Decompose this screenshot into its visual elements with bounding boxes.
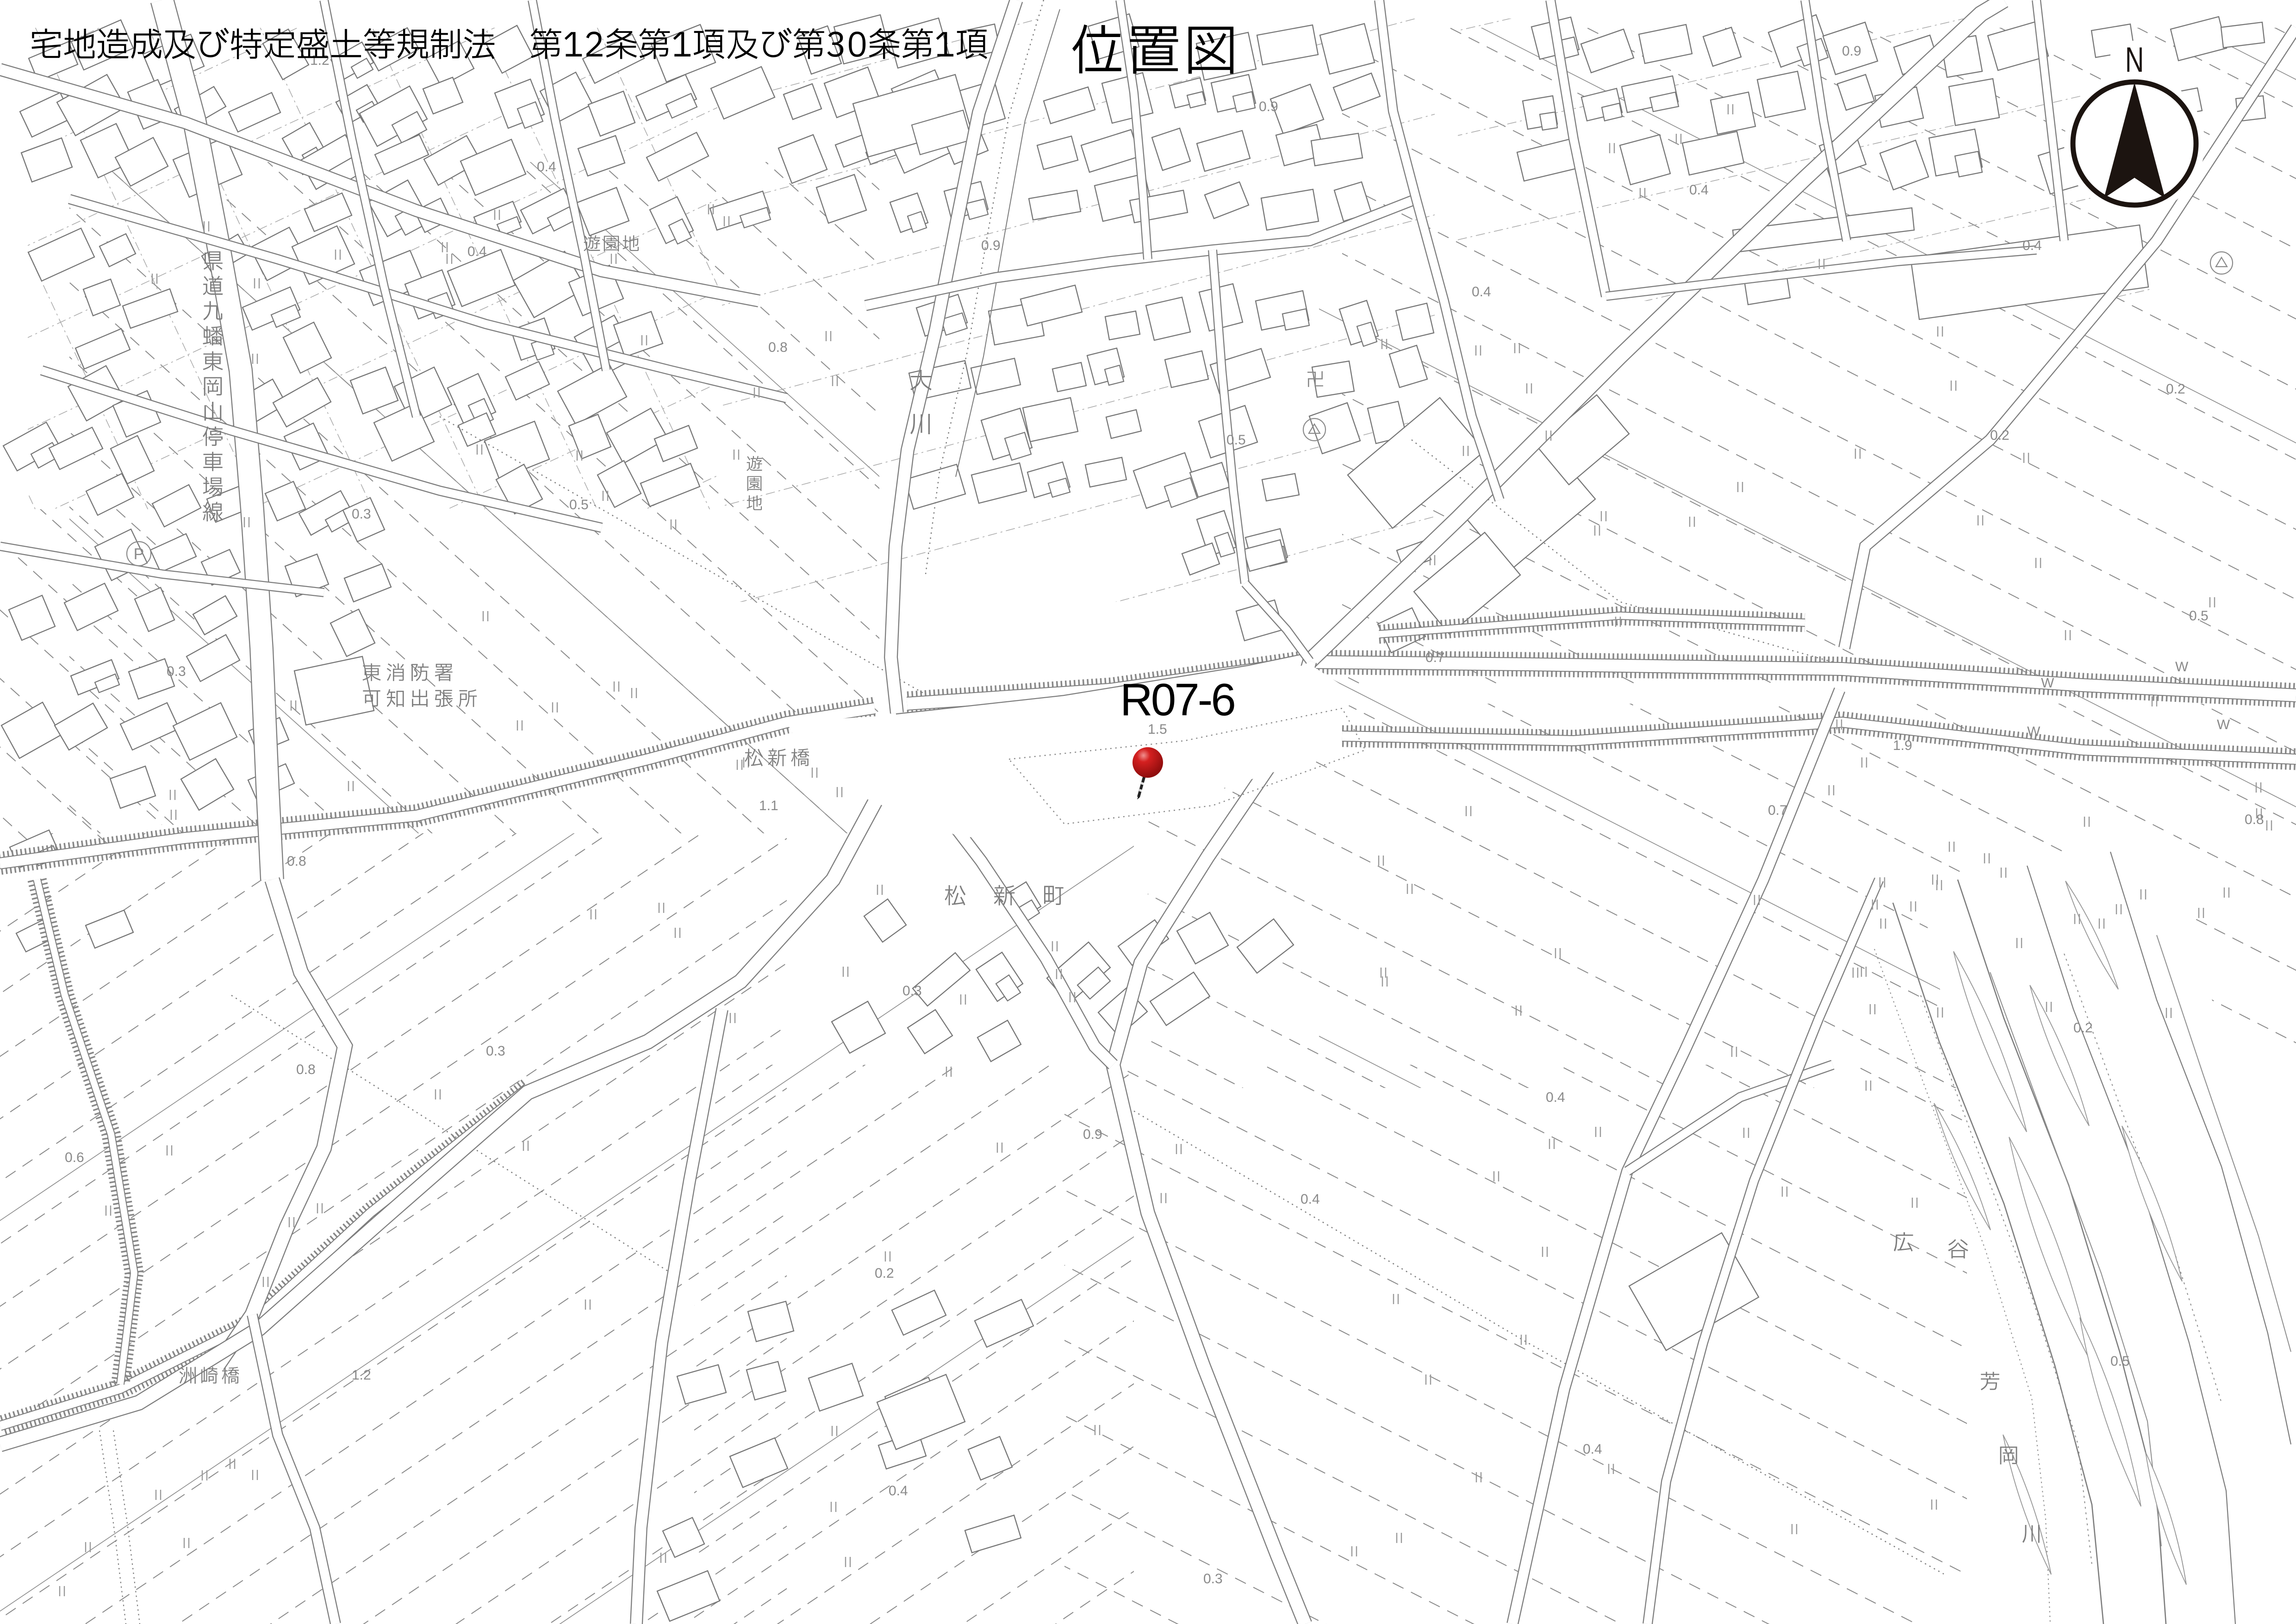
svg-text:0.4: 0.4 — [889, 1483, 908, 1499]
svg-text:1.9: 1.9 — [1893, 738, 1912, 753]
svg-text:0.6: 0.6 — [65, 1150, 84, 1165]
svg-text:W: W — [2217, 717, 2230, 732]
svg-text:N: N — [2125, 40, 2144, 80]
svg-text:0.3: 0.3 — [1203, 1571, 1223, 1587]
svg-text:0.4: 0.4 — [1300, 1192, 1320, 1207]
svg-text:0.9: 0.9 — [1842, 44, 1861, 59]
svg-text:0.4: 0.4 — [1472, 284, 1491, 300]
svg-text:0.9: 0.9 — [1259, 99, 1278, 114]
svg-text:0.8: 0.8 — [2245, 812, 2264, 827]
svg-text:0.8: 0.8 — [287, 854, 306, 869]
svg-text:0.4: 0.4 — [1689, 182, 1709, 198]
svg-text:0.2: 0.2 — [2166, 381, 2185, 397]
svg-text:W: W — [2041, 675, 2054, 691]
svg-text:1.2: 1.2 — [310, 53, 330, 68]
svg-text:1.1: 1.1 — [759, 798, 778, 813]
svg-text:0.8: 0.8 — [768, 340, 788, 355]
svg-text:0.5: 0.5 — [2189, 608, 2209, 624]
svg-text:0.9: 0.9 — [981, 238, 1001, 253]
svg-text:0.9: 0.9 — [1083, 1127, 1102, 1142]
svg-text:0.7: 0.7 — [1768, 803, 1787, 818]
svg-text:0.5: 0.5 — [2110, 1354, 2130, 1369]
svg-text:0.3: 0.3 — [902, 983, 922, 999]
svg-text:0.3: 0.3 — [167, 664, 186, 679]
svg-text:0.2: 0.2 — [875, 1266, 894, 1281]
svg-text:0.5: 0.5 — [1226, 432, 1246, 448]
svg-text:P: P — [134, 545, 144, 563]
svg-text:0.5: 0.5 — [569, 497, 589, 512]
svg-text:0.8: 0.8 — [296, 1062, 316, 1077]
svg-text:0.3: 0.3 — [352, 506, 371, 522]
svg-text:0.4: 0.4 — [537, 159, 556, 175]
svg-text:0.2: 0.2 — [2073, 1020, 2093, 1036]
svg-text:0.4: 0.4 — [1546, 1090, 1565, 1105]
svg-text:0.7: 0.7 — [1425, 650, 1445, 665]
svg-text:0.4: 0.4 — [1583, 1442, 1602, 1457]
svg-text:1.2: 1.2 — [352, 1368, 371, 1383]
svg-text:W: W — [2027, 724, 2041, 739]
svg-text:0.2: 0.2 — [1990, 428, 2010, 443]
svg-text:0.4: 0.4 — [2022, 238, 2042, 253]
svg-text:0.4: 0.4 — [467, 244, 487, 259]
svg-text:R07-6: R07-6 — [1120, 674, 1234, 725]
svg-text:W: W — [2175, 659, 2189, 675]
svg-text:0.3: 0.3 — [486, 1043, 505, 1059]
